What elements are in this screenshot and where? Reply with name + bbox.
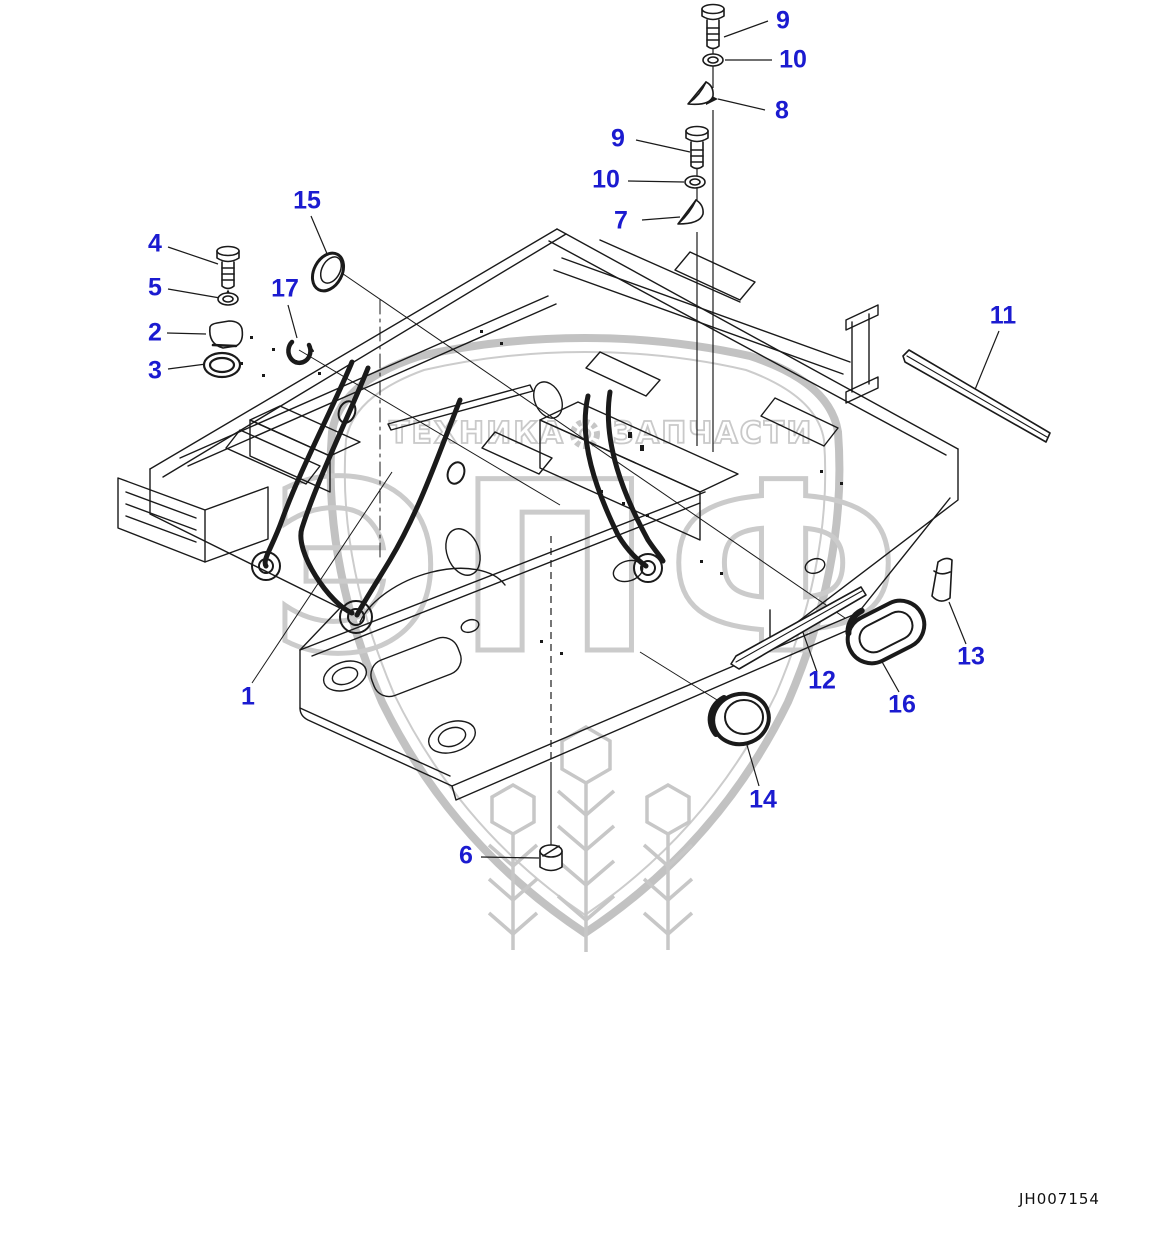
step-assembly	[118, 478, 268, 562]
callout-11: 11	[990, 302, 1016, 331]
part-bolt-mid	[686, 127, 708, 169]
callout-3: 3	[148, 357, 162, 386]
callout-9-top: 9	[776, 7, 790, 36]
callout-10-mid: 10	[592, 166, 620, 195]
callout-9-mid: 9	[611, 125, 625, 154]
callout-5: 5	[148, 274, 162, 303]
part-washer-top	[703, 54, 723, 66]
callout-2: 2	[148, 319, 162, 348]
drawing-code: JH007154	[1019, 1190, 1100, 1208]
part-cap-8	[688, 82, 713, 104]
part-grommet-15	[306, 248, 350, 296]
part-washer-5	[218, 293, 238, 305]
callout-7: 7	[614, 207, 628, 236]
callout-14: 14	[749, 786, 777, 815]
part-ring-3	[204, 353, 240, 377]
exploded-view-drawing: ТЕХНИКА ЗАПЧАСТИ ЭПФ	[0, 0, 1171, 1252]
callout-10-top: 10	[779, 46, 807, 75]
part-bolt-4	[217, 247, 239, 299]
part-cap-2	[210, 321, 243, 348]
part-washer-mid	[685, 176, 705, 188]
wheat-icon	[489, 727, 692, 952]
part-rod-11	[903, 350, 1050, 442]
callout-8: 8	[775, 97, 789, 126]
part-bolt-top	[702, 5, 724, 49]
part-cap-7	[678, 200, 703, 224]
callout-6: 6	[459, 842, 473, 871]
callout-17: 17	[271, 275, 299, 304]
callout-16: 16	[888, 691, 916, 720]
callout-4: 4	[148, 230, 162, 259]
part-plug-13	[932, 558, 952, 601]
callout-15: 15	[293, 187, 321, 216]
parts-diagram-page: ТЕХНИКА ЗАПЧАСТИ ЭПФ	[0, 0, 1171, 1252]
part-plug-6	[540, 845, 562, 871]
callout-13: 13	[957, 643, 985, 672]
callout-12: 12	[808, 667, 836, 696]
part-clip-17	[288, 342, 313, 363]
watermark: ТЕХНИКА ЗАПЧАСТИ ЭПФ	[270, 338, 914, 952]
callout-1: 1	[241, 683, 255, 712]
